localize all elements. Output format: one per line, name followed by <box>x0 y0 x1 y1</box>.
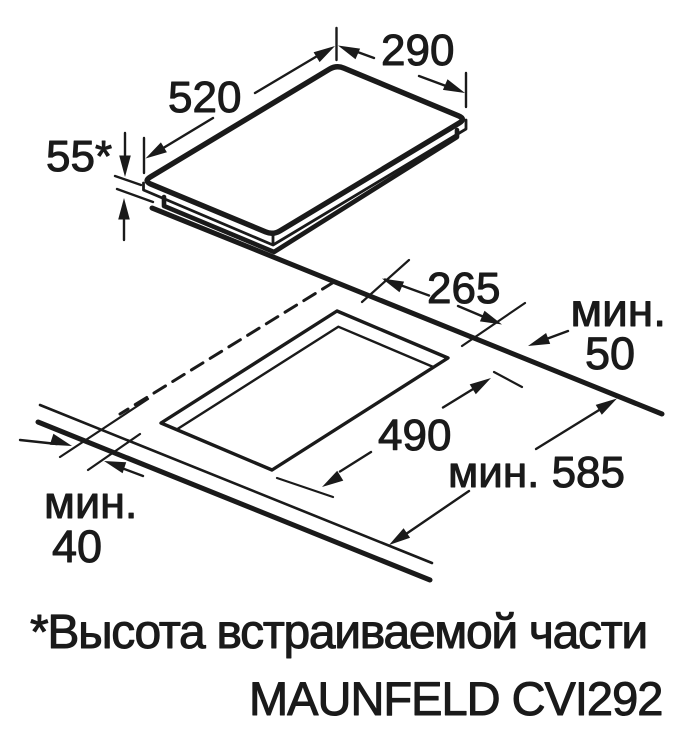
svg-text:265: 265 <box>427 264 500 313</box>
svg-text:*Высота встраиваемой части: *Высота встраиваемой части <box>30 606 647 659</box>
svg-text:290: 290 <box>381 26 454 75</box>
svg-text:MAUNFELD CVI292: MAUNFELD CVI292 <box>249 672 662 725</box>
svg-text:40: 40 <box>52 521 102 572</box>
svg-text:55*: 55* <box>46 132 112 181</box>
svg-text:50: 50 <box>585 328 635 379</box>
svg-text:490: 490 <box>378 411 451 460</box>
svg-text:мин. 585: мин. 585 <box>448 448 625 497</box>
svg-text:520: 520 <box>168 73 241 122</box>
